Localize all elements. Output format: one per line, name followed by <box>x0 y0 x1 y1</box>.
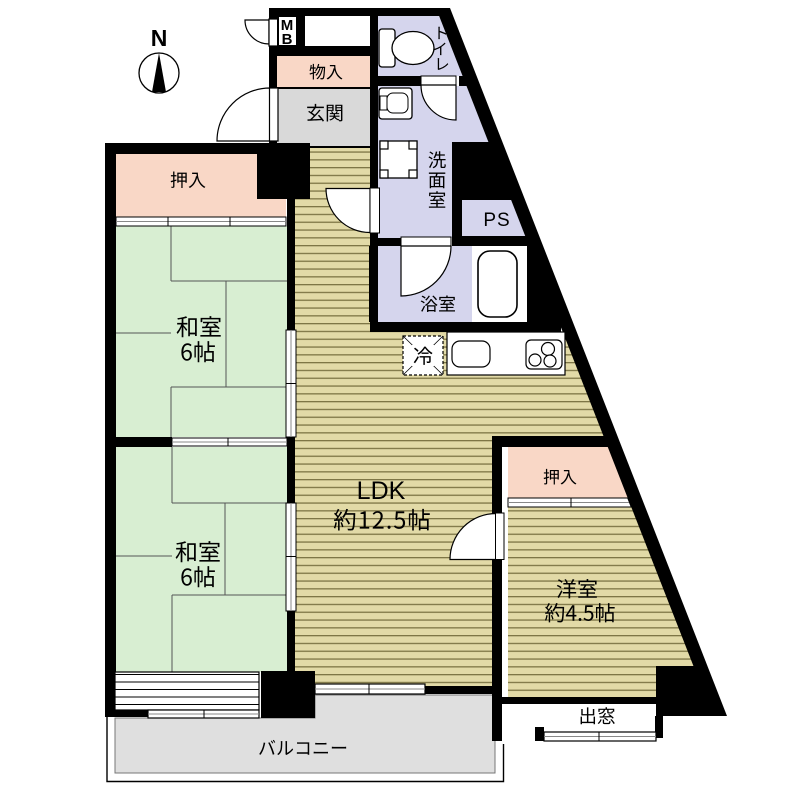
svg-text:LDK: LDK <box>357 477 406 505</box>
svg-text:PS: PS <box>483 210 510 231</box>
svg-text:B: B <box>282 31 293 48</box>
svg-text:N: N <box>151 25 168 51</box>
